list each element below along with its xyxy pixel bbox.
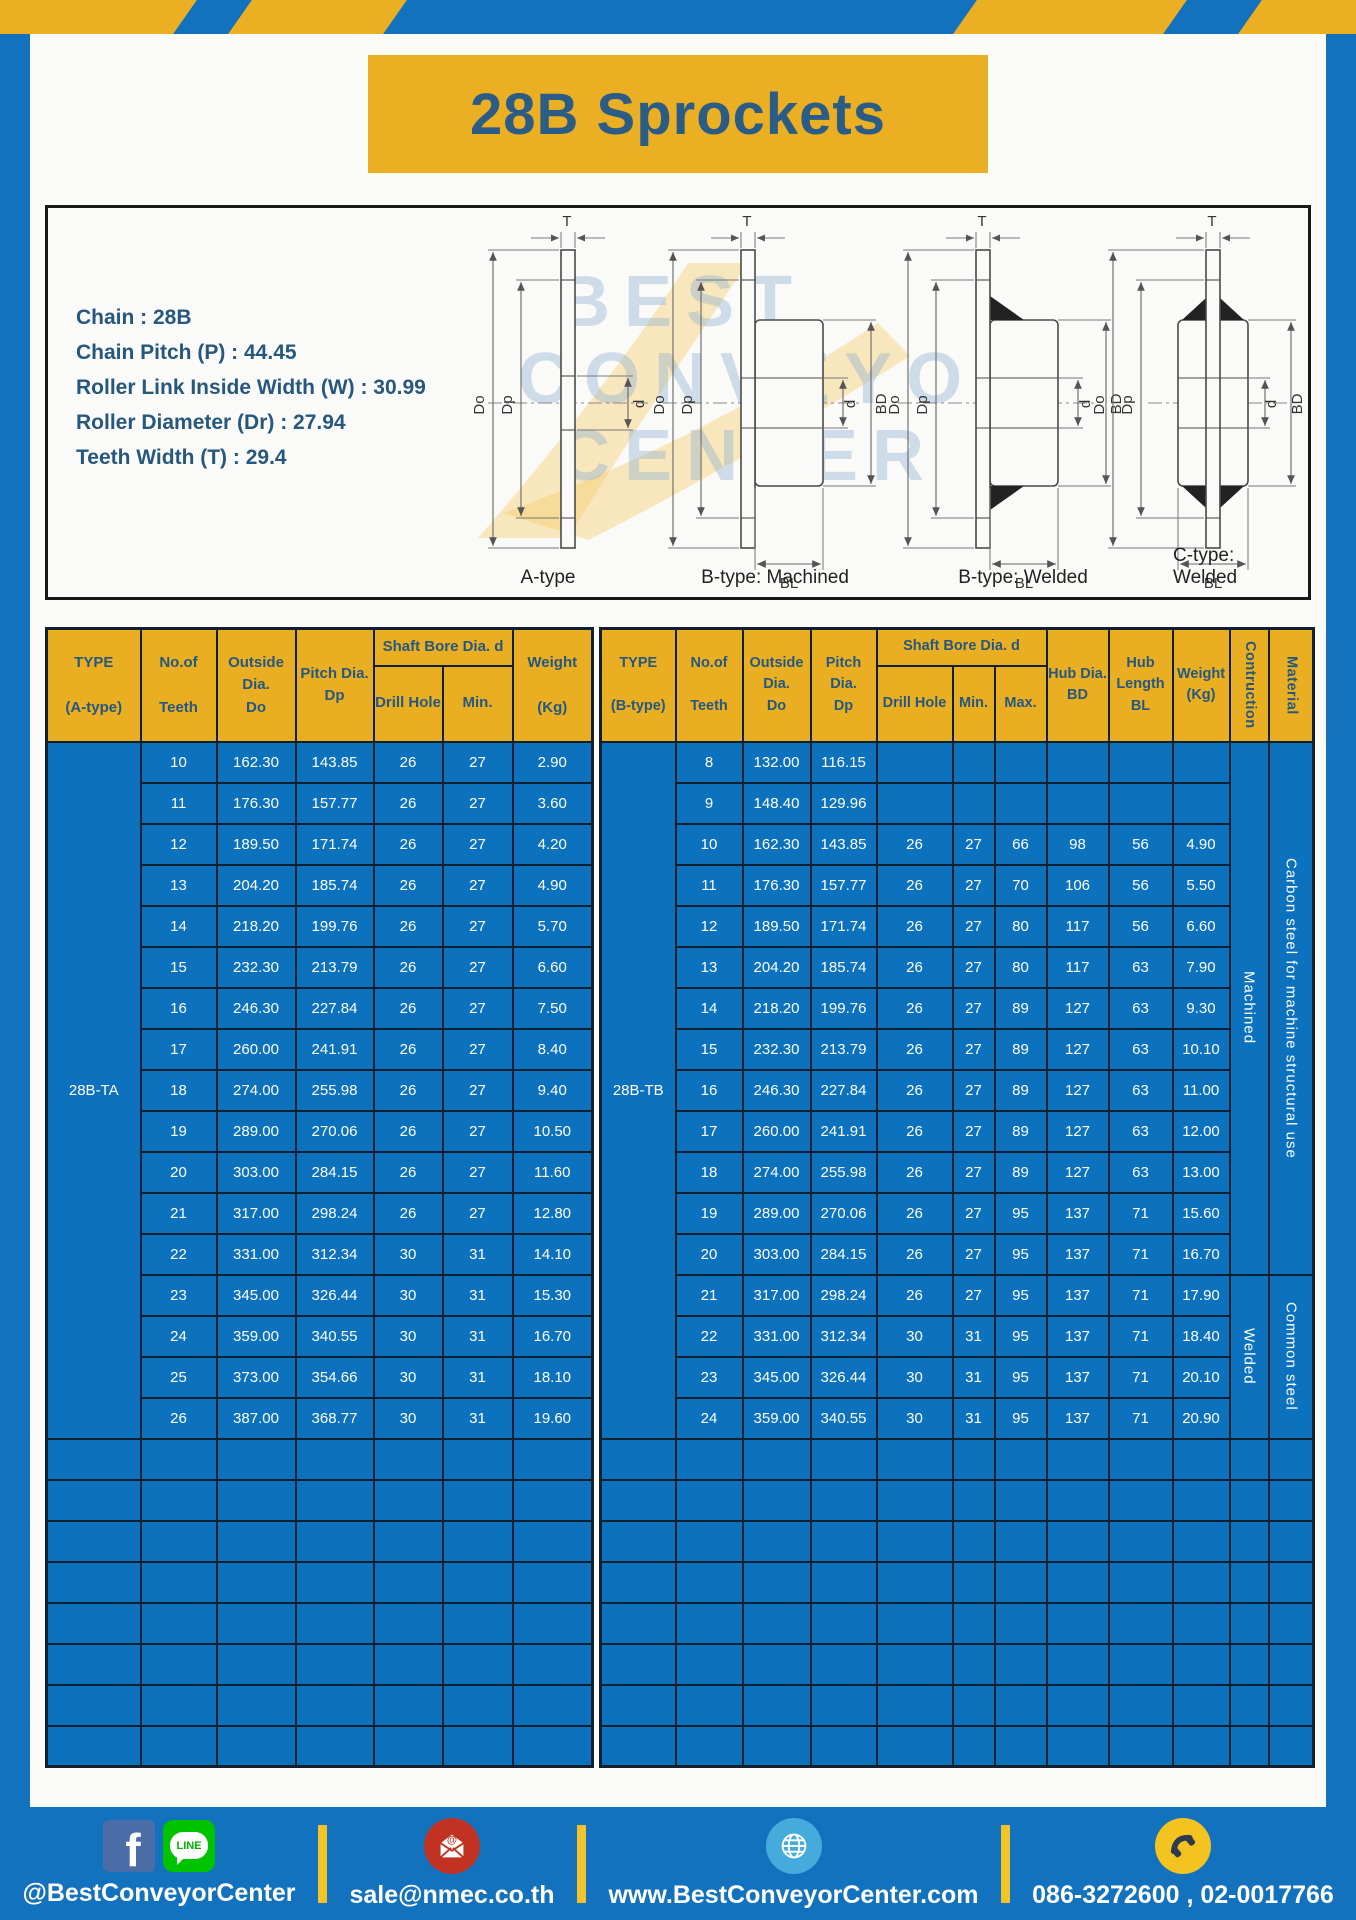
empty-cell	[601, 1562, 676, 1603]
page-title: 28B Sprockets	[470, 81, 886, 148]
empty-cell	[374, 1726, 443, 1767]
drill-hole-header: Drill Hole	[374, 666, 443, 742]
data-cell: 21	[141, 1193, 217, 1234]
empty-cell	[601, 1480, 676, 1521]
empty-cell	[743, 1480, 811, 1521]
empty-cell	[995, 1603, 1047, 1644]
data-cell: 26	[374, 988, 443, 1029]
empty-cell	[676, 1562, 743, 1603]
data-cell: 26	[374, 947, 443, 988]
data-cell: 98	[1047, 824, 1109, 865]
empty-cell	[296, 1480, 374, 1521]
data-cell: 26	[374, 1070, 443, 1111]
empty-cell	[601, 1603, 676, 1644]
data-cell: 16	[676, 1070, 743, 1111]
data-cell: 106	[1047, 865, 1109, 906]
data-cell: 27	[443, 1193, 513, 1234]
data-cell: 176.30	[743, 865, 811, 906]
data-cell: 4.20	[513, 824, 593, 865]
empty-cell	[141, 1685, 217, 1726]
empty-cell	[1109, 1726, 1173, 1767]
data-cell: 143.85	[296, 742, 374, 783]
data-cell: 30	[877, 1316, 953, 1357]
empty-cell	[296, 1685, 374, 1726]
data-cell: 30	[877, 1398, 953, 1439]
data-cell: 26	[877, 906, 953, 947]
empty-cell	[141, 1439, 217, 1480]
data-cell: 27	[953, 865, 995, 906]
empty-cell	[1047, 1521, 1109, 1562]
data-cell: 27	[443, 865, 513, 906]
empty-cell	[995, 1439, 1047, 1480]
data-cell: 241.91	[811, 1111, 877, 1152]
empty-cell	[1047, 1480, 1109, 1521]
empty-cell	[217, 1439, 296, 1480]
data-cell: 14	[141, 906, 217, 947]
table-row: 18274.00255.982627891276313.00	[601, 1152, 1314, 1193]
data-cell: 11	[141, 783, 217, 824]
empty-cell	[141, 1726, 217, 1767]
data-cell: 132.00	[743, 742, 811, 783]
data-cell: 13.00	[1173, 1152, 1230, 1193]
empty-cell	[217, 1603, 296, 1644]
empty-cell	[676, 1685, 743, 1726]
empty-cell	[953, 1726, 995, 1767]
hub-length-header: Hub Length BL	[1109, 629, 1173, 742]
empty-cell	[217, 1644, 296, 1685]
data-cell: 8.40	[513, 1029, 593, 1070]
data-cell: 18.10	[513, 1357, 593, 1398]
data-cell: 27	[443, 906, 513, 947]
line-bubble: LINE	[170, 1832, 208, 1859]
phone-numbers: 086-3272600 , 02-0017766	[1032, 1881, 1334, 1910]
empty-cell	[141, 1562, 217, 1603]
data-cell: 7.50	[513, 988, 593, 1029]
data-cell: 289.00	[743, 1193, 811, 1234]
empty-cell	[811, 1480, 877, 1521]
data-cell	[953, 742, 995, 783]
data-cell	[1173, 742, 1230, 783]
empty-cell	[513, 1603, 593, 1644]
data-cell: 157.77	[296, 783, 374, 824]
data-cell: 26	[877, 824, 953, 865]
data-cell: 27	[443, 947, 513, 988]
data-cell: 22	[676, 1316, 743, 1357]
data-cell: 6.60	[1173, 906, 1230, 947]
data-cell: 27	[953, 1275, 995, 1316]
diagram-panel: Chain : 28B Chain Pitch (P) : 44.45 Roll…	[45, 205, 1311, 600]
data-cell: 26	[374, 1152, 443, 1193]
data-cell: 95	[995, 1193, 1047, 1234]
data-cell: 80	[995, 906, 1047, 947]
data-cell: 227.84	[811, 1070, 877, 1111]
data-cell: 241.91	[296, 1029, 374, 1070]
data-cell: 95	[995, 1398, 1047, 1439]
empty-cell	[374, 1439, 443, 1480]
data-cell: 345.00	[217, 1275, 296, 1316]
data-cell: 56	[1109, 824, 1173, 865]
empty-cell	[877, 1439, 953, 1480]
data-cell: 9.30	[1173, 988, 1230, 1029]
table-row: 19289.00270.062627951377115.60	[601, 1193, 1314, 1234]
data-cell: 289.00	[217, 1111, 296, 1152]
empty-row	[601, 1562, 1314, 1603]
data-cell: 27	[443, 1152, 513, 1193]
data-cell: 199.76	[811, 988, 877, 1029]
data-cell: 63	[1109, 1029, 1173, 1070]
empty-cell	[676, 1480, 743, 1521]
max-header: Max.	[995, 666, 1047, 742]
empty-row	[47, 1726, 593, 1767]
data-cell: 26	[877, 1152, 953, 1193]
data-cell: 312.34	[296, 1234, 374, 1275]
data-cell: 27	[953, 824, 995, 865]
empty-cell	[443, 1562, 513, 1603]
empty-cell	[217, 1726, 296, 1767]
svg-text:Dp: Dp	[914, 395, 931, 414]
construction-header: Contruction	[1230, 629, 1269, 742]
empty-cell	[443, 1685, 513, 1726]
data-cell: 10.10	[1173, 1029, 1230, 1070]
decor-stripe	[1238, 0, 1356, 34]
data-cell: 317.00	[743, 1275, 811, 1316]
table-row: 20303.00284.152627951377116.70	[601, 1234, 1314, 1275]
data-cell: 117	[1047, 906, 1109, 947]
caption-a-type: A-type	[521, 567, 576, 589]
empty-cell	[877, 1603, 953, 1644]
data-cell: 30	[374, 1234, 443, 1275]
material-cell: Common steel	[1269, 1275, 1314, 1439]
spec-line: Roller Diameter (Dr) : 27.94	[76, 405, 426, 440]
data-cell: 26	[877, 1070, 953, 1111]
data-cell: 270.06	[296, 1111, 374, 1152]
empty-row	[601, 1521, 1314, 1562]
table-row: 28B-TB8132.00116.15MachinedCarbon steel …	[601, 742, 1314, 783]
empty-cell	[513, 1685, 593, 1726]
empty-row	[47, 1562, 593, 1603]
data-cell: 95	[995, 1275, 1047, 1316]
data-cell: 16.70	[1173, 1234, 1230, 1275]
data-cell: 21	[676, 1275, 743, 1316]
empty-cell	[1269, 1644, 1314, 1685]
empty-cell	[47, 1644, 141, 1685]
table-a-type: TYPE (A-type) No.of Teeth Outside Dia. D…	[45, 627, 594, 1768]
empty-cell	[1173, 1726, 1230, 1767]
empty-cell	[953, 1562, 995, 1603]
empty-cell	[743, 1603, 811, 1644]
empty-row	[601, 1480, 1314, 1521]
data-cell: 27	[953, 988, 995, 1029]
svg-text:T: T	[742, 213, 751, 230]
data-cell: 26	[877, 1111, 953, 1152]
empty-cell	[601, 1521, 676, 1562]
footer-email-group: @ sale@nmec.co.th	[327, 1807, 577, 1920]
data-cell: 204.20	[743, 947, 811, 988]
empty-cell	[217, 1562, 296, 1603]
data-cell: 30	[374, 1357, 443, 1398]
empty-cell	[1173, 1521, 1230, 1562]
empty-cell	[1230, 1603, 1269, 1644]
empty-cell	[1230, 1726, 1269, 1767]
empty-cell	[141, 1603, 217, 1644]
data-cell: 127	[1047, 1029, 1109, 1070]
weight-header: Weight (Kg)	[513, 629, 593, 742]
type-label: 28B-TA	[47, 742, 141, 1439]
outside-dia-header: Outside Dia. Do	[743, 629, 811, 742]
catalog-page: 28B Sprockets Chain : 28B Chain Pitch (P…	[0, 0, 1356, 1920]
empty-cell	[1230, 1644, 1269, 1685]
data-cell: 11.00	[1173, 1070, 1230, 1111]
data-cell: 30	[374, 1398, 443, 1439]
empty-cell	[953, 1603, 995, 1644]
data-cell: 27	[443, 1070, 513, 1111]
data-cell: 171.74	[296, 824, 374, 865]
data-cell: 26	[877, 865, 953, 906]
table-row: 24359.00340.553031951377120.90	[601, 1398, 1314, 1439]
data-cell: 298.24	[811, 1275, 877, 1316]
empty-cell	[513, 1439, 593, 1480]
empty-row	[601, 1603, 1314, 1644]
outside-dia-header: Outside Dia. Do	[217, 629, 296, 742]
empty-cell	[47, 1685, 141, 1726]
spec-line: Chain Pitch (P) : 44.45	[76, 335, 426, 370]
diagram-b-type-welded: T Do Dp d BD BL	[886, 213, 1125, 592]
caption-c-type-welded: C-type: Welded	[1173, 545, 1263, 589]
empty-cell	[1047, 1603, 1109, 1644]
data-cell: 26	[877, 1234, 953, 1275]
footer-phone-group: 086-3272600 , 02-0017766	[1010, 1807, 1356, 1920]
data-cell: 89	[995, 1111, 1047, 1152]
data-cell: 23	[676, 1357, 743, 1398]
data-cell: 27	[443, 742, 513, 783]
caption-b-type-machined: B-type: Machined	[701, 567, 849, 589]
table-row: 9148.40129.96	[601, 783, 1314, 824]
empty-cell	[296, 1562, 374, 1603]
data-cell: 19.60	[513, 1398, 593, 1439]
empty-cell	[811, 1726, 877, 1767]
data-cell: 26	[374, 865, 443, 906]
empty-cell	[743, 1644, 811, 1685]
empty-cell	[141, 1480, 217, 1521]
data-cell: 368.77	[296, 1398, 374, 1439]
data-cell: 303.00	[217, 1152, 296, 1193]
pitch-dia-header: Pitch Dia. Dp	[296, 629, 374, 742]
data-cell: 162.30	[743, 824, 811, 865]
data-cell: 9	[676, 783, 743, 824]
data-cell: 63	[1109, 1070, 1173, 1111]
data-cell	[1109, 742, 1173, 783]
empty-cell	[877, 1726, 953, 1767]
data-cell: 213.79	[811, 1029, 877, 1070]
data-cell: 157.77	[811, 865, 877, 906]
empty-cell	[1230, 1521, 1269, 1562]
empty-cell	[1173, 1439, 1230, 1480]
data-cell	[1109, 783, 1173, 824]
data-cell: 218.20	[743, 988, 811, 1029]
shaft-bore-header: Shaft Bore Dia. d	[877, 629, 1047, 666]
data-cell: 199.76	[296, 906, 374, 947]
data-cell: 20	[676, 1234, 743, 1275]
empty-row	[47, 1521, 593, 1562]
empty-cell	[513, 1480, 593, 1521]
data-cell: 15.30	[513, 1275, 593, 1316]
svg-text:T: T	[977, 213, 986, 230]
empty-cell	[1269, 1603, 1314, 1644]
data-cell: 232.30	[743, 1029, 811, 1070]
empty-cell	[374, 1562, 443, 1603]
svg-text:d: d	[631, 400, 648, 408]
empty-cell	[374, 1603, 443, 1644]
facebook-icon: f	[103, 1820, 155, 1872]
data-cell	[953, 783, 995, 824]
data-cell: 284.15	[811, 1234, 877, 1275]
data-cell: 25	[141, 1357, 217, 1398]
empty-cell	[676, 1603, 743, 1644]
type-label: 28B-TB	[601, 742, 676, 1439]
empty-cell	[513, 1726, 593, 1767]
empty-cell	[676, 1439, 743, 1480]
empty-cell	[995, 1480, 1047, 1521]
data-cell: 31	[953, 1398, 995, 1439]
table-row: 11176.30157.77262770106565.50	[601, 865, 1314, 906]
data-cell: 274.00	[743, 1152, 811, 1193]
data-cell: 171.74	[811, 906, 877, 947]
data-cell: 204.20	[217, 865, 296, 906]
data-cell	[995, 783, 1047, 824]
data-cell: 359.00	[743, 1398, 811, 1439]
empty-cell	[995, 1726, 1047, 1767]
data-cell	[995, 742, 1047, 783]
empty-cell	[953, 1685, 995, 1726]
empty-cell	[443, 1480, 513, 1521]
type-header: TYPE (B-type)	[601, 629, 676, 742]
data-cell: 30	[374, 1316, 443, 1357]
data-cell: 185.74	[811, 947, 877, 988]
empty-cell	[47, 1726, 141, 1767]
empty-cell	[953, 1521, 995, 1562]
svg-text:Dp: Dp	[499, 395, 516, 414]
weight-header: Weight (Kg)	[1173, 629, 1230, 742]
empty-cell	[296, 1726, 374, 1767]
empty-cell	[1047, 1562, 1109, 1603]
data-cell: 26	[374, 1193, 443, 1234]
data-cell: 95	[995, 1316, 1047, 1357]
data-cell: 255.98	[811, 1152, 877, 1193]
data-cell: 13	[676, 947, 743, 988]
data-cell: 340.55	[296, 1316, 374, 1357]
empty-cell	[296, 1644, 374, 1685]
data-cell: 137	[1047, 1316, 1109, 1357]
data-cell: 9.40	[513, 1070, 593, 1111]
empty-cell	[217, 1480, 296, 1521]
data-cell: 18.40	[1173, 1316, 1230, 1357]
empty-cell	[47, 1562, 141, 1603]
data-cell: 6.60	[513, 947, 593, 988]
teeth-header: No.of Teeth	[141, 629, 217, 742]
data-cell: 11	[676, 865, 743, 906]
data-cell: 27	[443, 783, 513, 824]
empty-cell	[1173, 1603, 1230, 1644]
data-cell: 246.30	[743, 1070, 811, 1111]
empty-cell	[811, 1562, 877, 1603]
drill-hole-header: Drill Hole	[877, 666, 953, 742]
data-cell: 303.00	[743, 1234, 811, 1275]
empty-row	[47, 1685, 593, 1726]
empty-row	[601, 1644, 1314, 1685]
data-cell: 331.00	[217, 1234, 296, 1275]
data-cell: 26	[374, 1111, 443, 1152]
empty-cell	[1230, 1480, 1269, 1521]
data-cell: 127	[1047, 1070, 1109, 1111]
data-cell: 3.60	[513, 783, 593, 824]
spec-line: Roller Link Inside Width (W) : 30.99	[76, 370, 426, 405]
data-cell: 127	[1047, 988, 1109, 1029]
empty-cell	[1109, 1562, 1173, 1603]
empty-cell	[601, 1726, 676, 1767]
data-cell: 137	[1047, 1193, 1109, 1234]
empty-cell	[877, 1562, 953, 1603]
data-cell: 185.74	[296, 865, 374, 906]
line-icon: LINE	[163, 1820, 215, 1872]
data-cell: 31	[953, 1316, 995, 1357]
social-handle: @BestConveyorCenter	[22, 1879, 295, 1908]
empty-cell	[47, 1603, 141, 1644]
data-cell: 117	[1047, 947, 1109, 988]
data-cell: 148.40	[743, 783, 811, 824]
empty-cell	[743, 1685, 811, 1726]
data-cell: 10	[141, 742, 217, 783]
data-cell: 176.30	[217, 783, 296, 824]
decor-stripe	[0, 0, 197, 34]
data-cell: 10	[676, 824, 743, 865]
empty-cell	[953, 1480, 995, 1521]
material-cell: Carbon steel for machine structural use	[1269, 742, 1314, 1275]
data-cell: 27	[953, 1111, 995, 1152]
empty-cell	[443, 1726, 513, 1767]
data-cell: 80	[995, 947, 1047, 988]
empty-cell	[1269, 1439, 1314, 1480]
data-cell: 27	[953, 1193, 995, 1234]
shaft-bore-header: Shaft Bore Dia. d	[374, 629, 513, 666]
empty-cell	[743, 1439, 811, 1480]
data-cell: 127	[1047, 1152, 1109, 1193]
email-address: sale@nmec.co.th	[349, 1881, 554, 1910]
svg-text:Dp: Dp	[1119, 395, 1136, 414]
data-cell: 71	[1109, 1275, 1173, 1316]
type-header: TYPE (A-type)	[47, 629, 141, 742]
data-cell: 373.00	[217, 1357, 296, 1398]
data-cell: 71	[1109, 1357, 1173, 1398]
website-url: www.BestConveyorCenter.com	[608, 1881, 978, 1910]
empty-cell	[296, 1603, 374, 1644]
empty-cell	[513, 1562, 593, 1603]
empty-cell	[47, 1439, 141, 1480]
data-cell: 312.34	[811, 1316, 877, 1357]
empty-cell	[676, 1644, 743, 1685]
data-cell: 7.90	[1173, 947, 1230, 988]
empty-cell	[743, 1726, 811, 1767]
empty-cell	[811, 1521, 877, 1562]
footer-contact-bar: f LINE @BestConveyorCenter @ sale@nmec.c…	[0, 1807, 1356, 1920]
data-cell: 298.24	[296, 1193, 374, 1234]
empty-cell	[953, 1644, 995, 1685]
data-cell	[1173, 783, 1230, 824]
data-cell: 10.50	[513, 1111, 593, 1152]
data-cell: 27	[953, 1029, 995, 1070]
data-cell: 260.00	[743, 1111, 811, 1152]
spec-line: Chain : 28B	[76, 300, 426, 335]
material-header: Material	[1269, 629, 1314, 742]
